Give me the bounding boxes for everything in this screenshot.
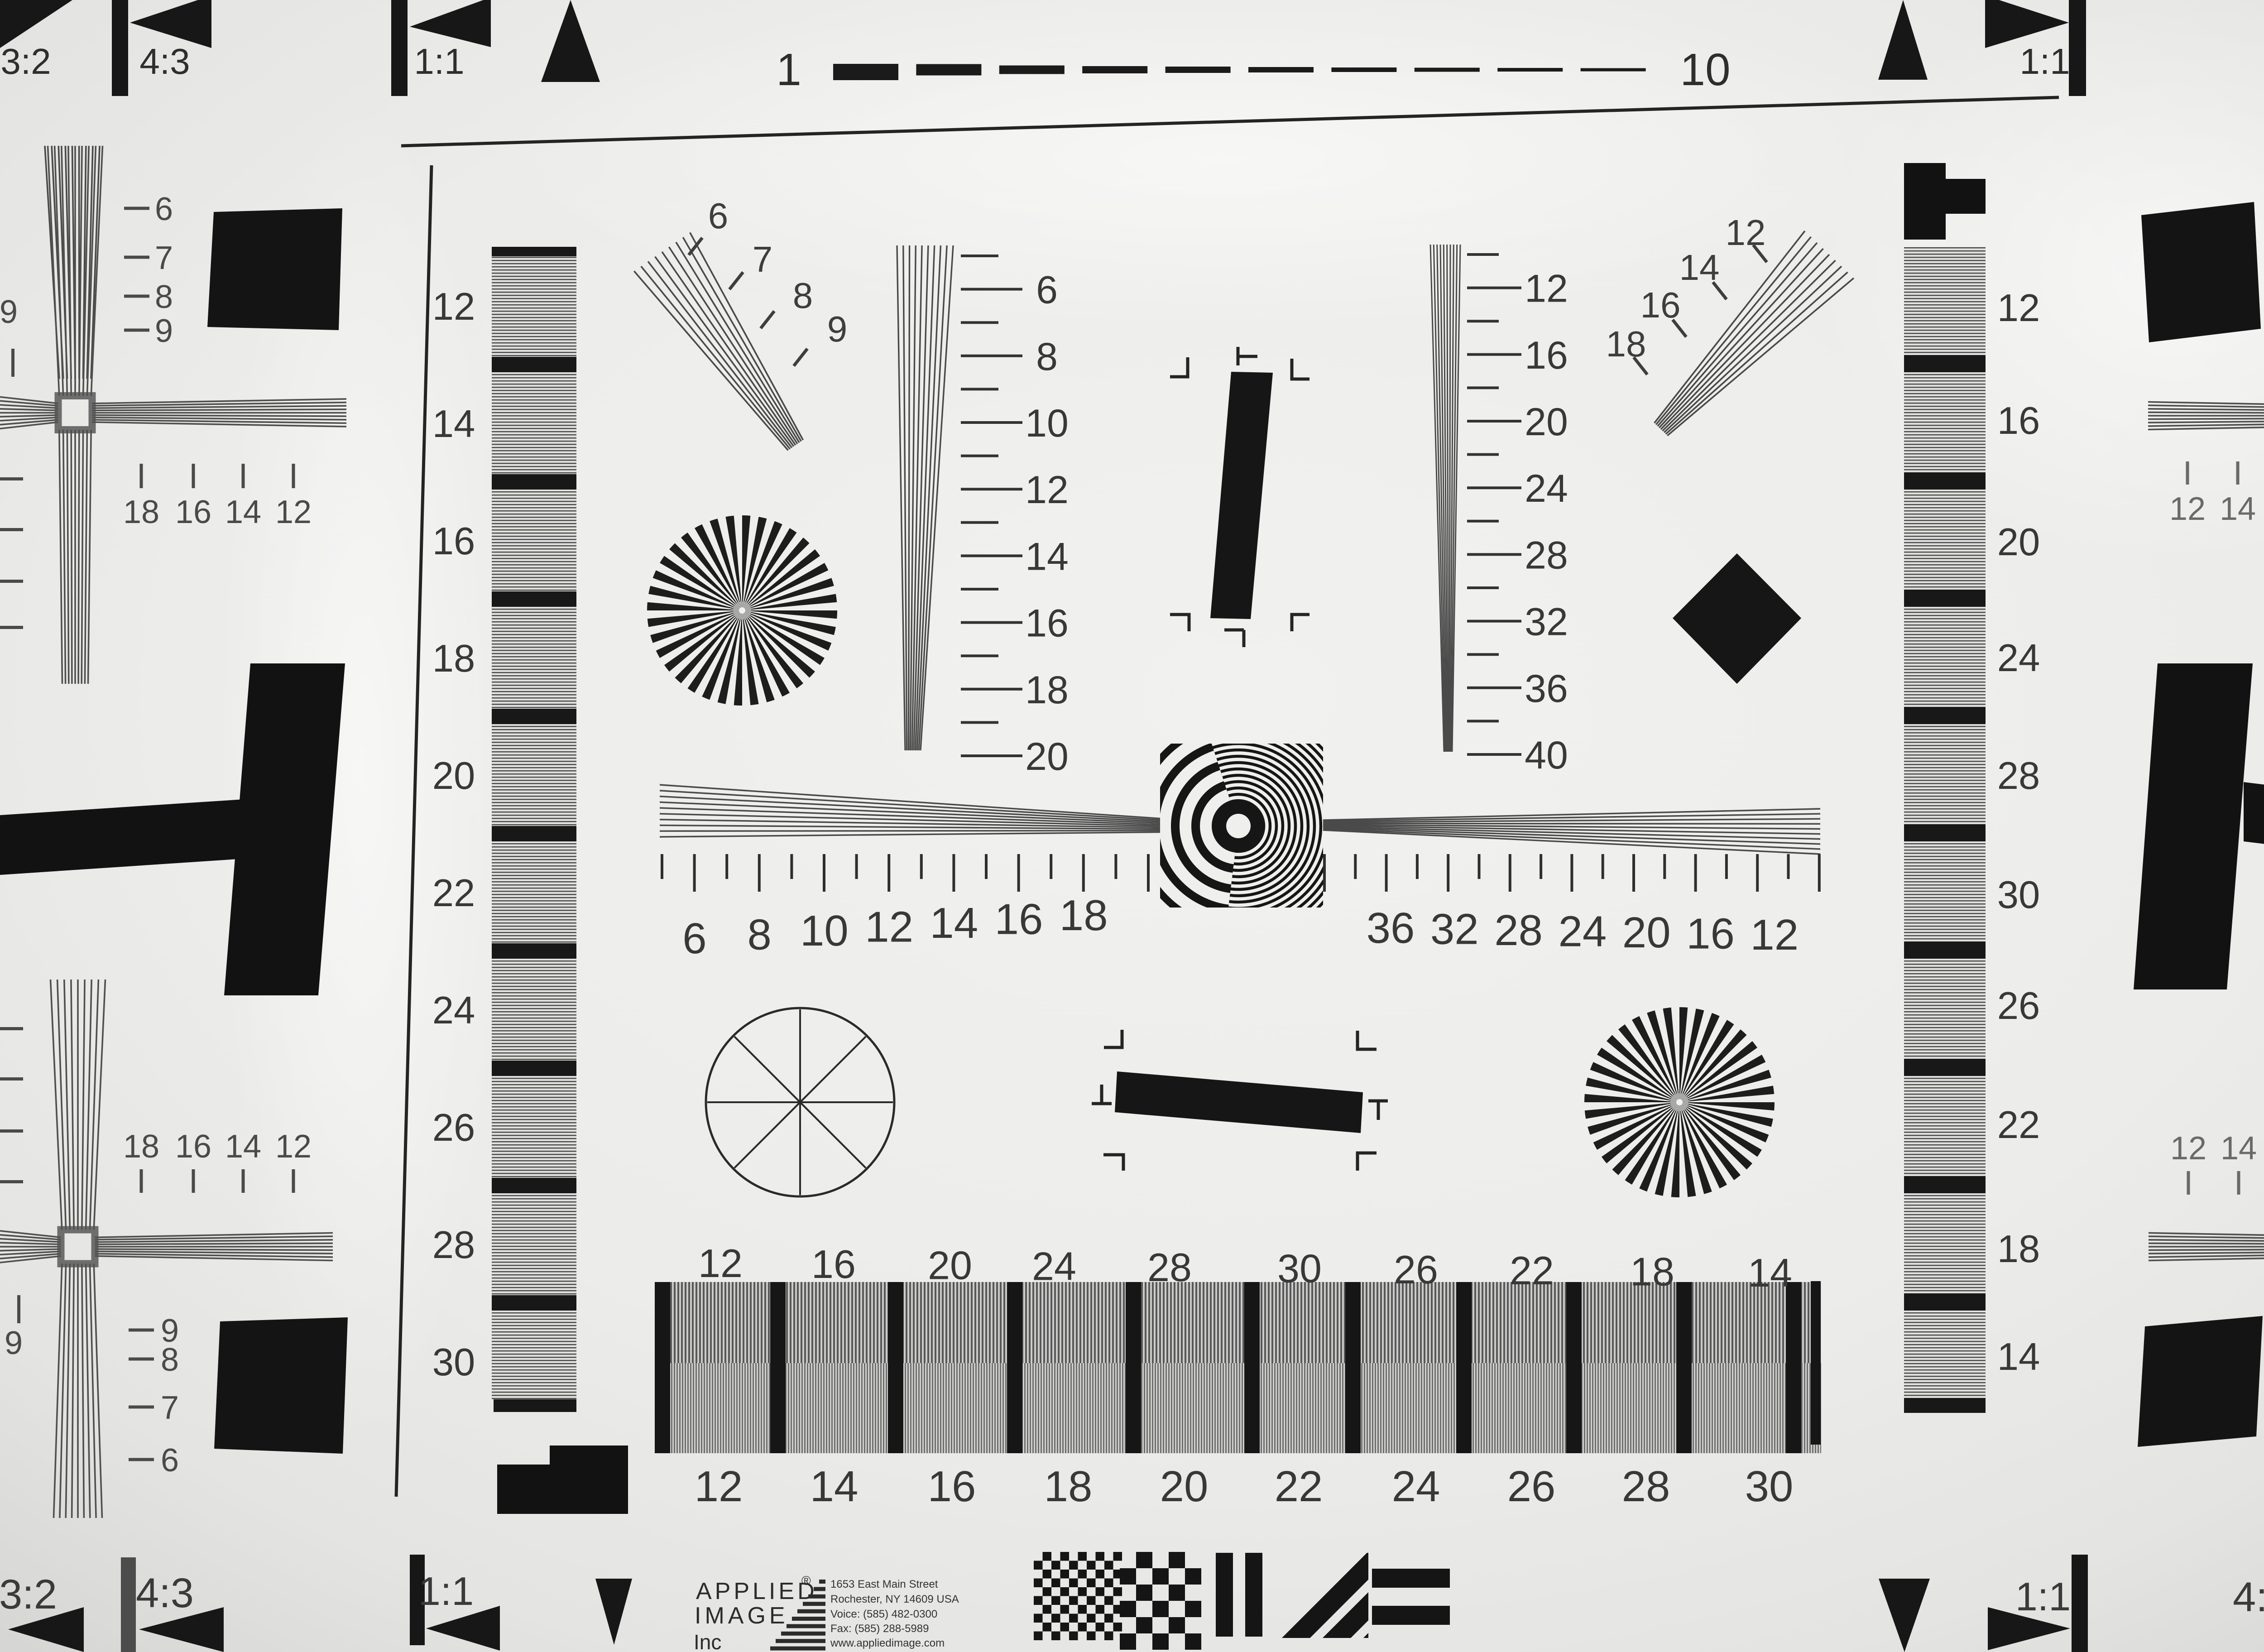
svg-text:8: 8	[1036, 335, 1058, 379]
svg-text:14: 14	[1997, 1335, 2040, 1378]
svg-text:12: 12	[2170, 1130, 2206, 1167]
svg-text:14: 14	[432, 403, 475, 446]
svg-text:12: 12	[695, 1462, 743, 1511]
svg-text:Rochester, NY 14609 USA: Rochester, NY 14609 USA	[830, 1593, 959, 1605]
svg-text:16: 16	[175, 494, 211, 530]
svg-text:6: 6	[161, 1442, 179, 1479]
svg-text:12: 12	[275, 1129, 312, 1165]
svg-text:26: 26	[432, 1106, 475, 1149]
svg-text:Fax: (585) 288-5989: Fax: (585) 288-5989	[830, 1623, 929, 1635]
svg-text:8: 8	[748, 911, 772, 959]
svg-text:3:2: 3:2	[0, 1571, 57, 1618]
svg-text:22: 22	[1997, 1104, 2040, 1147]
svg-text:16: 16	[1025, 602, 1069, 645]
svg-text:18: 18	[123, 494, 159, 530]
svg-text:12: 12	[1525, 267, 1568, 311]
svg-text:8: 8	[793, 275, 813, 316]
svg-text:APPLIED: APPLIED	[696, 1578, 818, 1604]
svg-text:®: ®	[801, 1574, 811, 1588]
svg-text:9: 9	[0, 294, 18, 330]
svg-text:6: 6	[155, 191, 173, 227]
svg-text:12: 12	[698, 1241, 743, 1286]
svg-text:IMAGE: IMAGE	[695, 1603, 789, 1629]
svg-text:24: 24	[1032, 1244, 1076, 1289]
svg-text:3:2: 3:2	[0, 41, 51, 82]
svg-text:14: 14	[930, 899, 978, 947]
svg-text:24: 24	[432, 989, 475, 1032]
svg-text:1:1: 1:1	[2015, 1574, 2071, 1619]
svg-text:6: 6	[682, 914, 706, 963]
svg-text:16: 16	[175, 1129, 211, 1165]
svg-text:1:1: 1:1	[418, 1569, 474, 1614]
svg-text:28: 28	[1494, 906, 1543, 955]
svg-text:18: 18	[1997, 1228, 2040, 1271]
svg-text:18: 18	[1606, 324, 1646, 364]
svg-text:12: 12	[865, 903, 913, 951]
svg-text:8: 8	[161, 1342, 179, 1378]
svg-text:7: 7	[161, 1390, 179, 1426]
svg-text:1:1: 1:1	[2019, 41, 2070, 82]
svg-text:16: 16	[995, 895, 1043, 944]
svg-text:20: 20	[928, 1243, 972, 1288]
svg-text:9: 9	[5, 1325, 23, 1361]
svg-text:28: 28	[1997, 754, 2040, 797]
svg-text:20: 20	[1622, 908, 1671, 957]
svg-text:16: 16	[1997, 399, 2040, 442]
svg-text:Inc: Inc	[694, 1630, 721, 1652]
svg-text:22: 22	[1510, 1248, 1554, 1293]
svg-text:8: 8	[155, 279, 173, 315]
svg-text:4:3: 4:3	[136, 1570, 194, 1616]
svg-text:28: 28	[1147, 1245, 1192, 1290]
svg-text:40: 40	[1525, 734, 1568, 777]
svg-text:Voice: (585) 482-0300: Voice: (585) 482-0300	[830, 1608, 937, 1620]
svg-text:24: 24	[1392, 1462, 1440, 1511]
svg-text:7: 7	[753, 239, 773, 279]
svg-text:9: 9	[155, 313, 173, 349]
svg-text:4:3: 4:3	[139, 41, 190, 82]
svg-text:18: 18	[1025, 668, 1069, 712]
svg-text:14: 14	[1025, 535, 1069, 578]
svg-text:24: 24	[1525, 467, 1568, 510]
svg-text:20: 20	[432, 754, 475, 797]
svg-text:14: 14	[2221, 1130, 2257, 1167]
svg-text:12: 12	[275, 494, 312, 530]
svg-text:4:3: 4:3	[2233, 1574, 2264, 1620]
svg-text:30: 30	[1745, 1462, 1794, 1511]
svg-text:14: 14	[1679, 247, 1720, 288]
svg-text:28: 28	[432, 1224, 475, 1267]
svg-text:1: 1	[776, 44, 801, 95]
svg-text:30: 30	[432, 1341, 475, 1384]
svg-text:16: 16	[1525, 334, 1568, 377]
svg-text:20: 20	[1997, 521, 2040, 564]
svg-text:14: 14	[225, 1129, 261, 1165]
svg-text:20: 20	[1525, 400, 1568, 444]
svg-text:26: 26	[1507, 1462, 1556, 1511]
svg-text:18: 18	[1044, 1462, 1093, 1511]
svg-text:1653 East Main Street: 1653 East Main Street	[830, 1578, 938, 1590]
svg-text:14: 14	[810, 1462, 859, 1511]
svg-text:16: 16	[432, 520, 475, 563]
svg-text:1:1: 1:1	[414, 41, 464, 82]
svg-text:28: 28	[1622, 1462, 1670, 1511]
svg-text:www.appliedimage.com: www.appliedimage.com	[830, 1637, 945, 1649]
svg-text:18: 18	[1630, 1249, 1674, 1294]
svg-text:18: 18	[1060, 891, 1108, 940]
svg-text:18: 18	[432, 637, 475, 680]
svg-text:16: 16	[928, 1462, 976, 1511]
svg-text:14: 14	[1748, 1250, 1792, 1295]
svg-text:12: 12	[1025, 468, 1069, 512]
svg-text:10: 10	[800, 907, 849, 955]
svg-text:14: 14	[225, 494, 261, 530]
svg-text:12: 12	[1997, 287, 2040, 330]
svg-text:12: 12	[432, 285, 475, 328]
svg-text:7: 7	[155, 240, 173, 276]
svg-text:20: 20	[1160, 1462, 1209, 1511]
svg-text:30: 30	[1997, 874, 2040, 917]
svg-text:36: 36	[1525, 667, 1568, 711]
svg-text:36: 36	[1367, 904, 1415, 952]
svg-text:24: 24	[1997, 637, 2040, 680]
svg-text:12: 12	[1726, 212, 1766, 253]
svg-text:26: 26	[1997, 984, 2040, 1028]
svg-text:10: 10	[1680, 44, 1730, 95]
svg-text:16: 16	[811, 1242, 856, 1287]
svg-text:22: 22	[432, 872, 475, 915]
svg-text:18: 18	[123, 1129, 159, 1165]
svg-text:32: 32	[1430, 905, 1479, 954]
svg-text:28: 28	[1525, 533, 1568, 577]
svg-text:22: 22	[1275, 1462, 1323, 1511]
svg-text:26: 26	[1394, 1247, 1438, 1292]
svg-text:30: 30	[1277, 1246, 1322, 1291]
svg-text:10: 10	[1025, 402, 1069, 445]
svg-text:14: 14	[2220, 491, 2256, 527]
svg-text:6: 6	[708, 196, 729, 236]
svg-text:20: 20	[1025, 735, 1069, 778]
svg-text:9: 9	[827, 309, 848, 349]
svg-text:12: 12	[1750, 911, 1799, 959]
svg-text:16: 16	[1640, 285, 1681, 325]
svg-text:16: 16	[1686, 910, 1735, 958]
svg-text:24: 24	[1559, 908, 1607, 956]
svg-text:12: 12	[2169, 491, 2206, 527]
svg-text:6: 6	[1036, 269, 1058, 312]
svg-text:32: 32	[1525, 600, 1568, 644]
